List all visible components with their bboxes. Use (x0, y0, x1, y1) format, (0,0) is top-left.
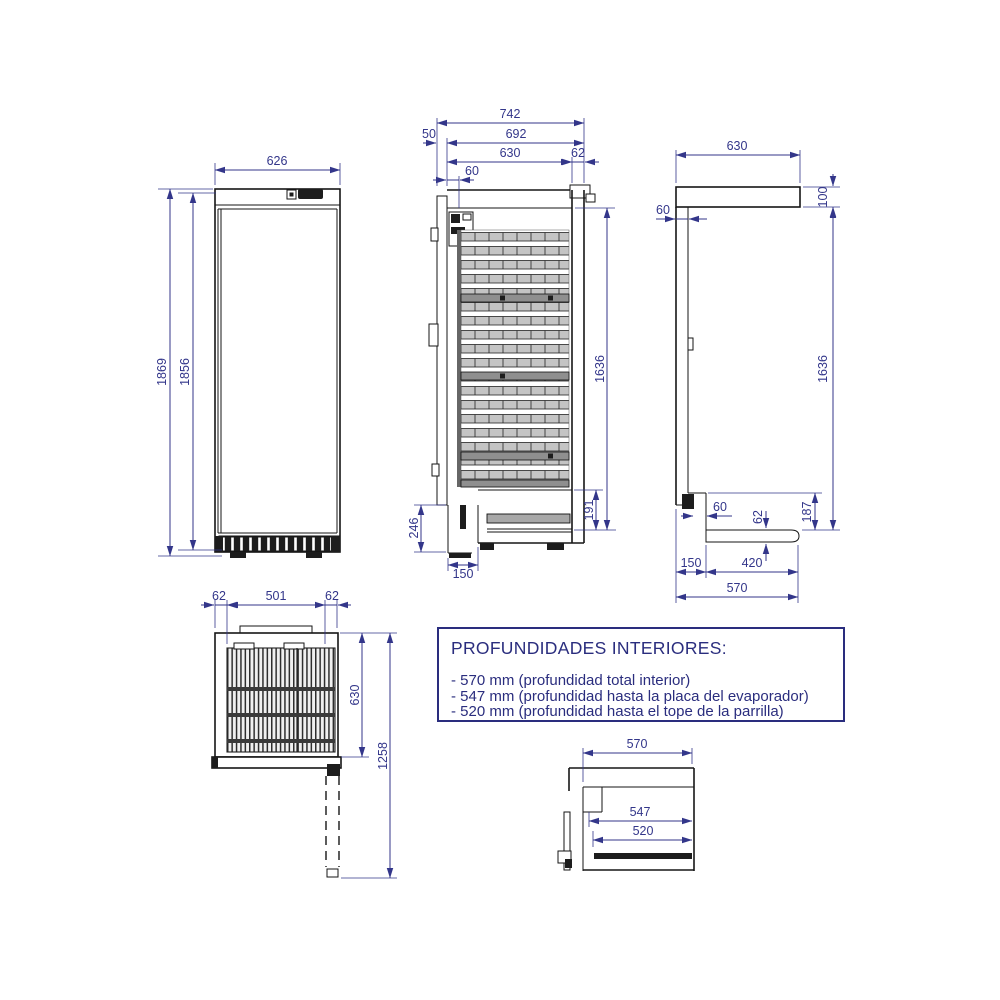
section-foot-back (547, 543, 564, 550)
section-evaporator-plates (461, 230, 569, 487)
dim-side-wall-thickness: 60 (656, 203, 670, 217)
side-foot-pin (682, 494, 694, 509)
section-compressor-pipe (460, 505, 466, 529)
front-cabinet-body (215, 189, 340, 552)
dim-side-top-height: 100 (816, 187, 830, 208)
dim-section-depth-total: 742 (500, 107, 521, 121)
dim-side-base-front: 150 (681, 556, 702, 570)
dim-section-plinth-depth: 150 (453, 567, 474, 581)
dim-section-bottom-compartment: 191 (582, 500, 596, 521)
dim-top-depth: 630 (348, 685, 362, 706)
dim-section-back-wall: 62 (571, 146, 585, 160)
dim-top-wall-left: 62 (212, 589, 226, 603)
dim-section-depth-no-door: 692 (506, 127, 527, 141)
dim-side-step-height: 187 (800, 502, 814, 523)
dim-side-interior-height: 1636 (816, 355, 830, 383)
top-lid (240, 626, 312, 633)
section-view: 742 692 50 630 62 60 1636 191 246 150 (407, 107, 616, 581)
top-door-hinge (327, 764, 340, 776)
dim-section-interior-depth: 630 (500, 146, 521, 160)
dim-side-base-total: 570 (727, 581, 748, 595)
dim-side-top-depth: 630 (727, 139, 748, 153)
dim-side-base-back: 420 (742, 556, 763, 570)
section-hinge-top (431, 228, 438, 241)
section-bottom-shelf (487, 514, 570, 523)
dim-top-depth-door-open: 1258 (376, 742, 390, 770)
dim-top-wall-right: 62 (325, 589, 339, 603)
depth-detail-view: 570 547 520 (558, 737, 694, 871)
dim-section-door-thickness: 50 (422, 127, 436, 141)
dim-side-step-offset: 60 (713, 500, 727, 514)
top-view: 62 501 62 630 1258 (201, 589, 397, 878)
technical-drawing: 626 1869 1856 (0, 0, 1000, 1000)
dim-detail-to-grid: 520 (633, 824, 654, 838)
dim-front-height-total: 1869 (155, 358, 169, 386)
dim-top-interior-width: 501 (266, 589, 287, 603)
section-hinge-bottom (432, 464, 439, 476)
section-door (437, 196, 447, 505)
dim-detail-total-interior: 570 (627, 737, 648, 751)
front-foot-left (230, 552, 246, 558)
notes-line-1: - 570 mm (profundidad total interior) (451, 673, 837, 689)
top-door-open-end (327, 869, 338, 877)
section-plate-rail (457, 230, 461, 487)
top-shelf-grid (227, 648, 335, 752)
dim-side-shelf-thickness: 62 (751, 510, 765, 524)
notes-line-2: - 547 mm (profundidad hasta la placa del… (451, 689, 837, 705)
section-foot-front (449, 553, 471, 558)
notes-line-3: - 520 mm (profundidad hasta el tope de l… (451, 704, 837, 720)
front-control-panel (298, 189, 323, 199)
front-view: 626 1869 1856 (155, 154, 340, 558)
dim-front-width: 626 (267, 154, 288, 168)
notes-box: PROFUNDIDADES INTERIORES: - 570 mm (prof… (437, 627, 845, 722)
drawing-canvas: 626 1869 1856 (0, 0, 1000, 1000)
side-view: 630 100 60 1636 187 62 60 150 420 570 (656, 139, 840, 603)
top-door-closed (212, 757, 341, 768)
front-ventilation-grille (219, 536, 339, 552)
dim-section-evap-offset: 60 (465, 164, 479, 178)
side-base-shelf (706, 530, 799, 542)
detail-grid-shelf (594, 853, 692, 859)
dim-section-interior-height: 1636 (593, 355, 607, 383)
side-top-panel (676, 187, 800, 207)
dim-front-height-body: 1856 (178, 358, 192, 386)
dim-detail-to-evaporator: 547 (630, 805, 651, 819)
section-hinge-mid (429, 324, 438, 346)
front-foot-right (306, 552, 322, 558)
dim-section-plinth-height: 246 (407, 518, 421, 539)
notes-title: PROFUNDIDADES INTERIORES: (451, 638, 837, 659)
